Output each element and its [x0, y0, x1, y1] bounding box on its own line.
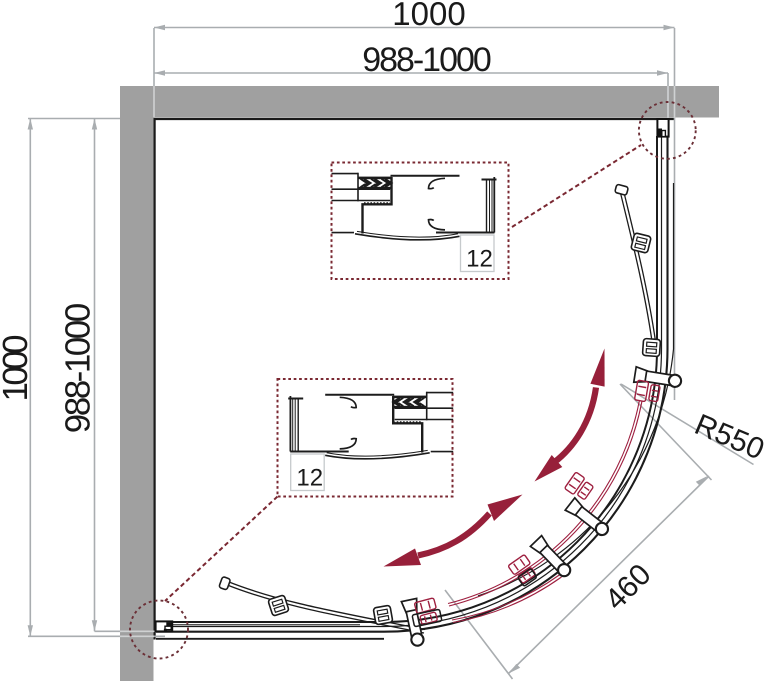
- svg-text:988-1000: 988-1000: [59, 303, 98, 434]
- svg-text:1000: 1000: [0, 335, 35, 402]
- svg-text:R550: R550: [690, 408, 769, 466]
- svg-text:988-1000: 988-1000: [362, 41, 492, 79]
- svg-text:12: 12: [296, 465, 323, 492]
- svg-text:1000: 1000: [392, 0, 465, 32]
- svg-text:460: 460: [599, 558, 658, 617]
- svg-text:12: 12: [466, 246, 493, 273]
